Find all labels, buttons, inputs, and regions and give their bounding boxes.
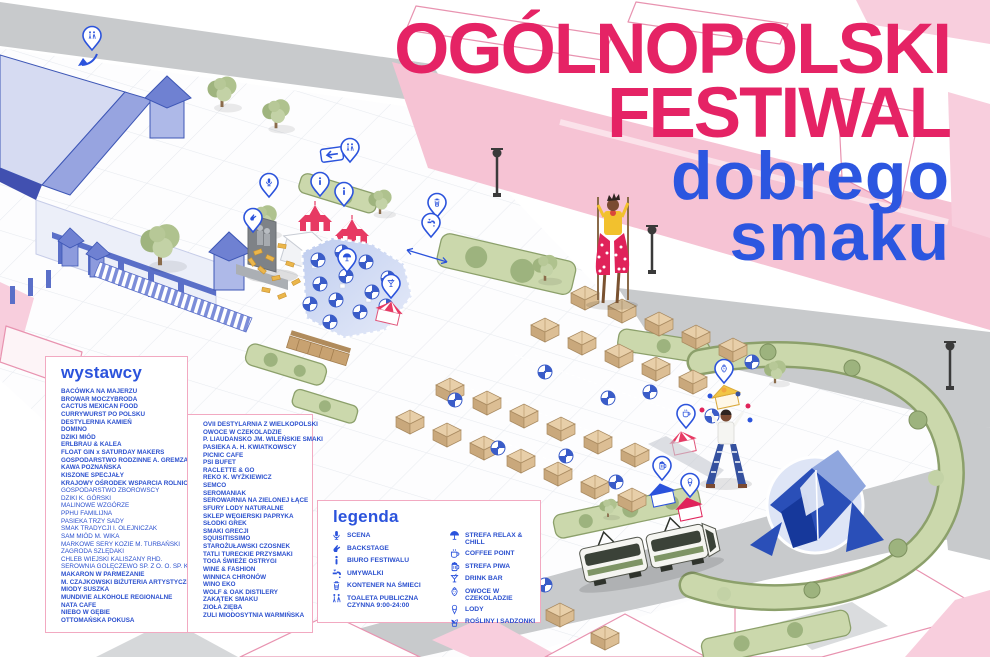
legend-row: KONTENER NA ŚMIECI (331, 580, 449, 591)
legend-label: KONTENER NA ŚMIECI (347, 580, 421, 589)
legend-column-2: STREFA RELAX & CHILL COFFEE POINT STREFA… (449, 530, 540, 629)
exhibitor-item: DZIKI MIÓD (61, 434, 183, 442)
exhibitor-item: SQUISITISSIMO (203, 535, 308, 543)
exhibitor-item: SŁODKI GREK (203, 520, 308, 528)
exhibitors-panel-2: OVII DESTYLARNIA Z WIELKOPOLSKIOWOCE W C… (187, 414, 313, 633)
festival-poster: OGÓLNOPOLSKI FESTIWAL dobrego smaku wyst… (0, 0, 990, 657)
parasol-icon (449, 530, 460, 541)
legend-label: LODY (465, 604, 484, 613)
exhibitors-heading: wystawcy (61, 363, 187, 383)
exhibitor-item: SEROWNIA GOLĘCZEWO SP. Z O. O. SP. K. (61, 563, 183, 571)
exhibitor-item: P. LIAUDANSKO JM. WILEŃSKIE SMAKI (203, 436, 308, 444)
exhibitor-item: CURRYWURST PO POLSKU (61, 411, 183, 419)
exhibitor-list-1: BACÓWKA NA MAJERZUBROWAR MOCZYBRODACACTU… (46, 386, 187, 624)
exhibitor-item: PICNIC CAFE (203, 452, 308, 460)
exhibitor-item: SEMCO (203, 482, 308, 490)
exhibitor-item: SKLEP WĘGIERSKI PAPRYKA (203, 513, 308, 521)
plant-icon (449, 616, 460, 627)
exhibitor-item: MARKOWE SERY KOZIE M. TURBAŃSKI (61, 541, 183, 549)
legend-label: STREFA RELAX & CHILL (465, 530, 540, 546)
exhibitor-item: GOSPODARSTWO ZBOROWSCY (61, 487, 183, 495)
beer-icon (449, 561, 460, 572)
exhibitor-item: SMAKI GRECJI (203, 528, 308, 536)
legend-label: BIURO FESTIWALU (347, 555, 409, 564)
arrow-sign (320, 147, 344, 163)
exhibitor-item: MIODY SUSZKA (61, 586, 183, 594)
exhibitor-item: SEROMANIAK (203, 490, 308, 498)
backstage-icon (331, 543, 342, 554)
exhibitor-item: MALINOWE WZGÓRZE (61, 502, 183, 510)
legend-row: LODY (449, 604, 540, 615)
exhibitor-item: WINE & FASHION (203, 566, 308, 574)
exhibitor-item: ZAGRODA SZLĘDAKI (61, 548, 183, 556)
exhibitor-item: TOGA ŚWIEŻE OSTRYGI (203, 558, 308, 566)
info-icon (331, 555, 342, 566)
exhibitor-item: KRAJOWY OŚRODEK WSPARCIA ROLNICTWA: (61, 480, 183, 488)
exhibitor-item: PASIEKA A. H. KWIATKOWSCY (203, 444, 308, 452)
exhibitor-item: WOLF & OAK DISTILERY (203, 589, 308, 597)
legend-heading: legenda (333, 507, 540, 527)
exhibitor-item: STAROŻUŁAWSKI CZOSNEK (203, 543, 308, 551)
wc-icon (331, 593, 342, 604)
exhibitor-item: NIEBO W GĘBIE (61, 609, 183, 617)
legend-label: COFFEE POINT (465, 548, 514, 557)
exhibitor-item: M. CZAJKOWSKI BIŻUTERIA ARTYSTYCZNA (61, 579, 183, 587)
legend-row: UMYWALKI (331, 568, 449, 579)
legend-row: BIURO FESTIWALU (331, 555, 449, 566)
legend-label: ROŚLINY I SADZONKI (465, 616, 535, 625)
exhibitor-item: MUNDIVIE ALKOHOLE REGIONALNE (61, 594, 183, 602)
legend-row: BACKSTAGE (331, 543, 449, 554)
exhibitor-item: PSI BUFET (203, 459, 308, 467)
trash-icon (331, 580, 342, 591)
coffee-icon (449, 548, 460, 559)
legend-label: UMYWALKI (347, 568, 383, 577)
strawberry-icon (449, 586, 460, 597)
icecream-icon (449, 604, 460, 615)
legend-row: OWOCE W CZEKOLADZIE (449, 586, 540, 602)
exhibitor-item: MAKARON W PARMEZANIE (61, 571, 183, 579)
exhibitor-item: ZULI MIODOSYTNIA WARMIŃSKA (203, 612, 308, 620)
legend-label: SCENA (347, 530, 370, 539)
exhibitor-item: KISZONE SPECJAŁY (61, 472, 183, 480)
exhibitor-item: CHLEB WIEJSKI KALISZANY RHD. (61, 556, 183, 564)
exhibitor-item: ERLBRAU & KALEA (61, 441, 183, 449)
exhibitor-item: ZAKĄTEK SMAKU (203, 596, 308, 604)
exhibitor-item: DESTYLERNIA KAMIEŃ (61, 419, 183, 427)
exhibitor-item: SEROWARNIA NA ZIELONEJ ŁĄCE (203, 497, 308, 505)
legend-label: DRINK BAR (465, 573, 503, 582)
exhibitor-item: DOMINO (61, 426, 183, 434)
legend-column-1: SCENA BACKSTAGE BIURO FESTIWALU UMYWALKI… (331, 530, 449, 629)
exhibitor-item: SMAK TRADYCJI I. OLEJNICZAK (61, 525, 183, 533)
legend-row: DRINK BAR (449, 573, 540, 584)
exhibitor-item: PASIEKA TRZY SADY (61, 518, 183, 526)
exhibitor-item: REKO K. WYŻKIEWICZ (203, 474, 308, 482)
exhibitor-item: OVII DESTYLARNIA Z WIELKOPOLSKI (203, 421, 308, 429)
exhibitor-item: SFURY LODY NATURALNE (203, 505, 308, 513)
legend-row: TOALETA PUBLICZNA CZYNNA 9:00-24:00 (331, 593, 449, 609)
exhibitor-item: WINO EKO (203, 581, 308, 589)
legend-row: SCENA (331, 530, 449, 541)
exhibitor-list-2: OVII DESTYLARNIA Z WIELKOPOLSKIOWOCE W C… (188, 415, 312, 619)
exhibitors-panel-1: wystawcy BACÓWKA NA MAJERZUBROWAR MOCZYB… (45, 356, 188, 633)
exhibitor-item: BROWAR MOCZYBRODA (61, 396, 183, 404)
legend-panel: legenda SCENA BACKSTAGE BIURO FESTIWALU (317, 500, 541, 623)
drink-icon (449, 573, 460, 584)
exhibitor-item: NATA CAFE (61, 602, 183, 610)
exhibitor-item: OTTOMAŃSKA POKUSA (61, 617, 183, 625)
legend-label: OWOCE W CZEKOLADZIE (465, 586, 540, 602)
exhibitor-item: FLOAT GIN x SATURDAY MAKERS (61, 449, 183, 457)
exhibitor-item: SAM MIÓD M. WIKA (61, 533, 183, 541)
exhibitor-item: ZIOŁA ZIĘBA (203, 604, 308, 612)
legend-row: STREFA PIWA (449, 561, 540, 572)
faucet-icon (331, 568, 342, 579)
legend-label: STREFA PIWA (465, 561, 510, 570)
legend-row: COFFEE POINT (449, 548, 540, 559)
exhibitor-item: PPHU FAMILIJNA (61, 510, 183, 518)
exhibitor-item: CACTUS MEXICAN FOOD (61, 403, 183, 411)
exhibitor-item: KAWA POZNAŃSKA (61, 464, 183, 472)
legend-row: STREFA RELAX & CHILL (449, 530, 540, 546)
exhibitor-item: WINNICA CHRONÓW (203, 574, 308, 582)
legend-label: TOALETA PUBLICZNA CZYNNA 9:00-24:00 (347, 593, 418, 609)
legend-label: BACKSTAGE (347, 543, 389, 552)
microphone-icon (331, 530, 342, 541)
exhibitor-item: BACÓWKA NA MAJERZU (61, 388, 183, 396)
legend-row: ROŚLINY I SADZONKI (449, 616, 540, 627)
